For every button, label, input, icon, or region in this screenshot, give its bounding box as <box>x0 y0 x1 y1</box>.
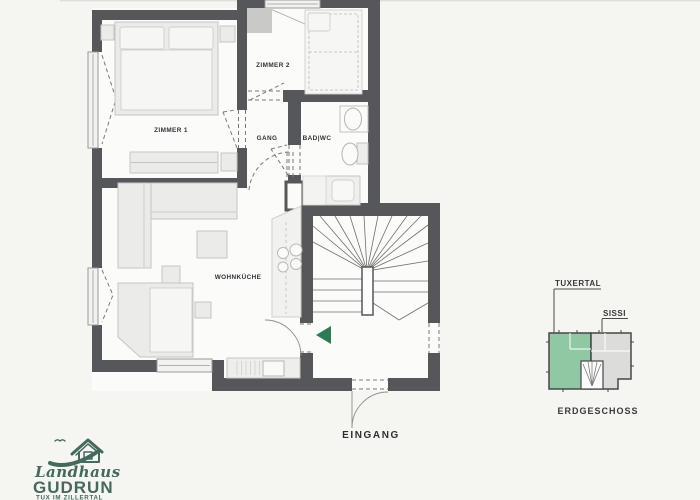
pillow <box>169 27 213 49</box>
stair-newel <box>362 267 373 315</box>
logo-house-icon <box>50 440 102 465</box>
bath-cabinet <box>303 176 326 205</box>
kitchen-sink-unit <box>227 358 300 378</box>
logo: Landhaus GUDRUN TUX IM ZILLERTAL <box>33 440 121 500</box>
label-zimmer2: ZIMMER 2 <box>256 62 290 69</box>
door-eingang <box>352 378 388 428</box>
floor-plan-canvas: ZIMMER 1 ZIMMER 2 GANG BAD|WC WOHNKÜCHE … <box>0 0 700 500</box>
logo-tagline-text: TUX IM ZILLERTAL <box>36 495 103 500</box>
inset-keyplan: TUXERTAL SISSI <box>546 279 639 416</box>
small-table <box>195 302 211 318</box>
inset-label-tuxertal: TUXERTAL <box>555 279 601 288</box>
label-bad: BAD|WC <box>303 135 332 142</box>
label-zimmer1: ZIMMER 1 <box>154 127 188 134</box>
window-wohnkueche-bottom <box>157 359 212 372</box>
wardrobe <box>247 8 272 33</box>
floorplan-page: ZIMMER 1 ZIMMER 2 GANG BAD|WC WOHNKÜCHE … <box>0 0 700 500</box>
sofa-vertical <box>118 183 151 268</box>
label-eingang: EINGANG <box>342 430 400 441</box>
side-table <box>162 266 180 283</box>
sink <box>263 361 284 376</box>
window-stairhall-right <box>428 323 440 353</box>
coffee-table <box>197 231 227 258</box>
side-cabinet <box>221 153 237 171</box>
nightstand <box>220 26 235 42</box>
inset-floor-label: ERDGESCHOSS <box>557 406 638 416</box>
pillow <box>308 13 330 31</box>
label-wohnkueche: WOHNKÜCHE <box>215 272 262 281</box>
washbasin <box>345 108 362 130</box>
inset-stairwell <box>581 361 603 389</box>
inset-label-sissi: SISSI <box>603 309 626 318</box>
label-gang: GANG <box>257 135 278 142</box>
toilet <box>342 143 358 165</box>
nightstand <box>101 25 114 40</box>
toilet-tank <box>357 143 368 164</box>
pillow <box>120 27 164 49</box>
